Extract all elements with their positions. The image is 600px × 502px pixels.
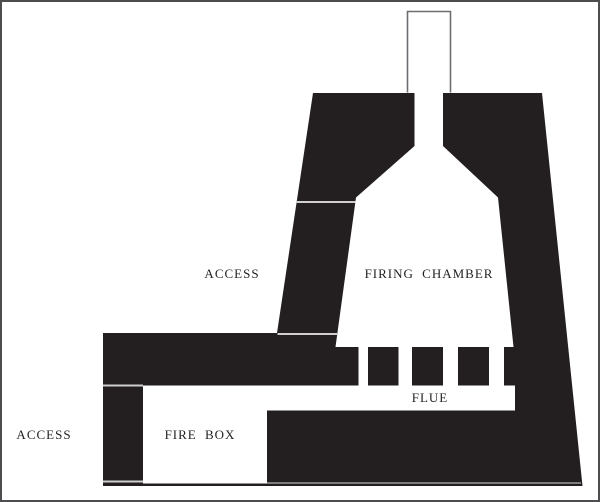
flue-opening-1 bbox=[359, 346, 369, 386]
label-access-upper: ACCESS bbox=[204, 266, 259, 282]
label-flue: FLUE bbox=[412, 390, 449, 406]
chimney-outline bbox=[408, 12, 451, 93]
label-firing-chamber: FIRING CHAMBER bbox=[365, 266, 494, 282]
kiln-cross-section-diagram: ACCESS FIRING CHAMBER FLUE ACCESS FIRE B… bbox=[0, 0, 600, 502]
flue-opening-2 bbox=[399, 346, 413, 386]
diagram-canvas bbox=[0, 0, 600, 502]
flue-opening-3 bbox=[443, 346, 458, 386]
flue-opening-4 bbox=[489, 346, 504, 386]
label-access-lower: ACCESS bbox=[16, 427, 71, 443]
label-fire-box: FIRE BOX bbox=[165, 427, 236, 443]
